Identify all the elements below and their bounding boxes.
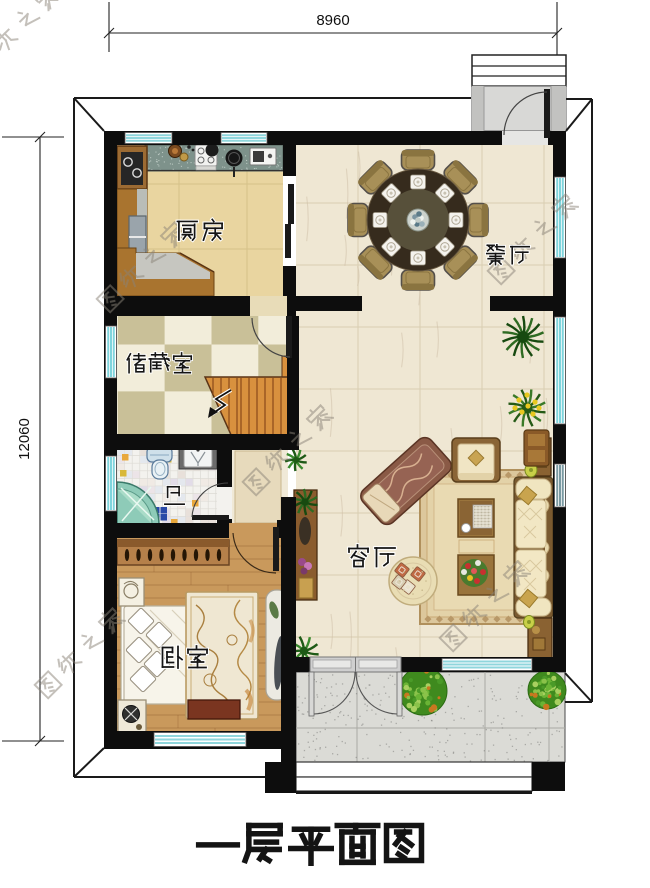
svg-text:8960: 8960 (316, 12, 349, 29)
svg-text:12060: 12060 (16, 418, 33, 460)
